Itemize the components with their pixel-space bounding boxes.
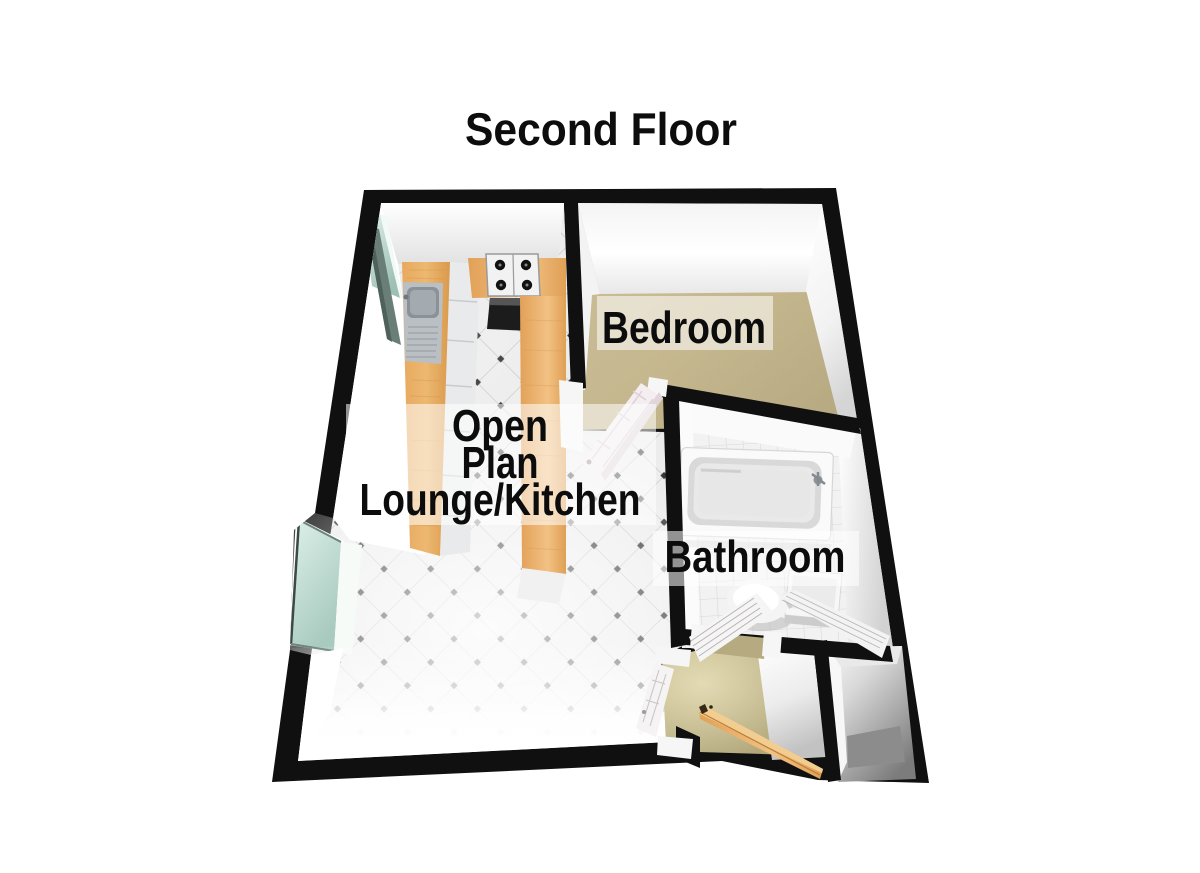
svg-text:Bathroom: Bathroom (665, 531, 846, 582)
svg-text:Second Floor: Second Floor (465, 103, 737, 155)
svg-text:Bedroom: Bedroom (602, 302, 766, 353)
svg-text:Lounge/Kitchen: Lounge/Kitchen (360, 474, 641, 525)
